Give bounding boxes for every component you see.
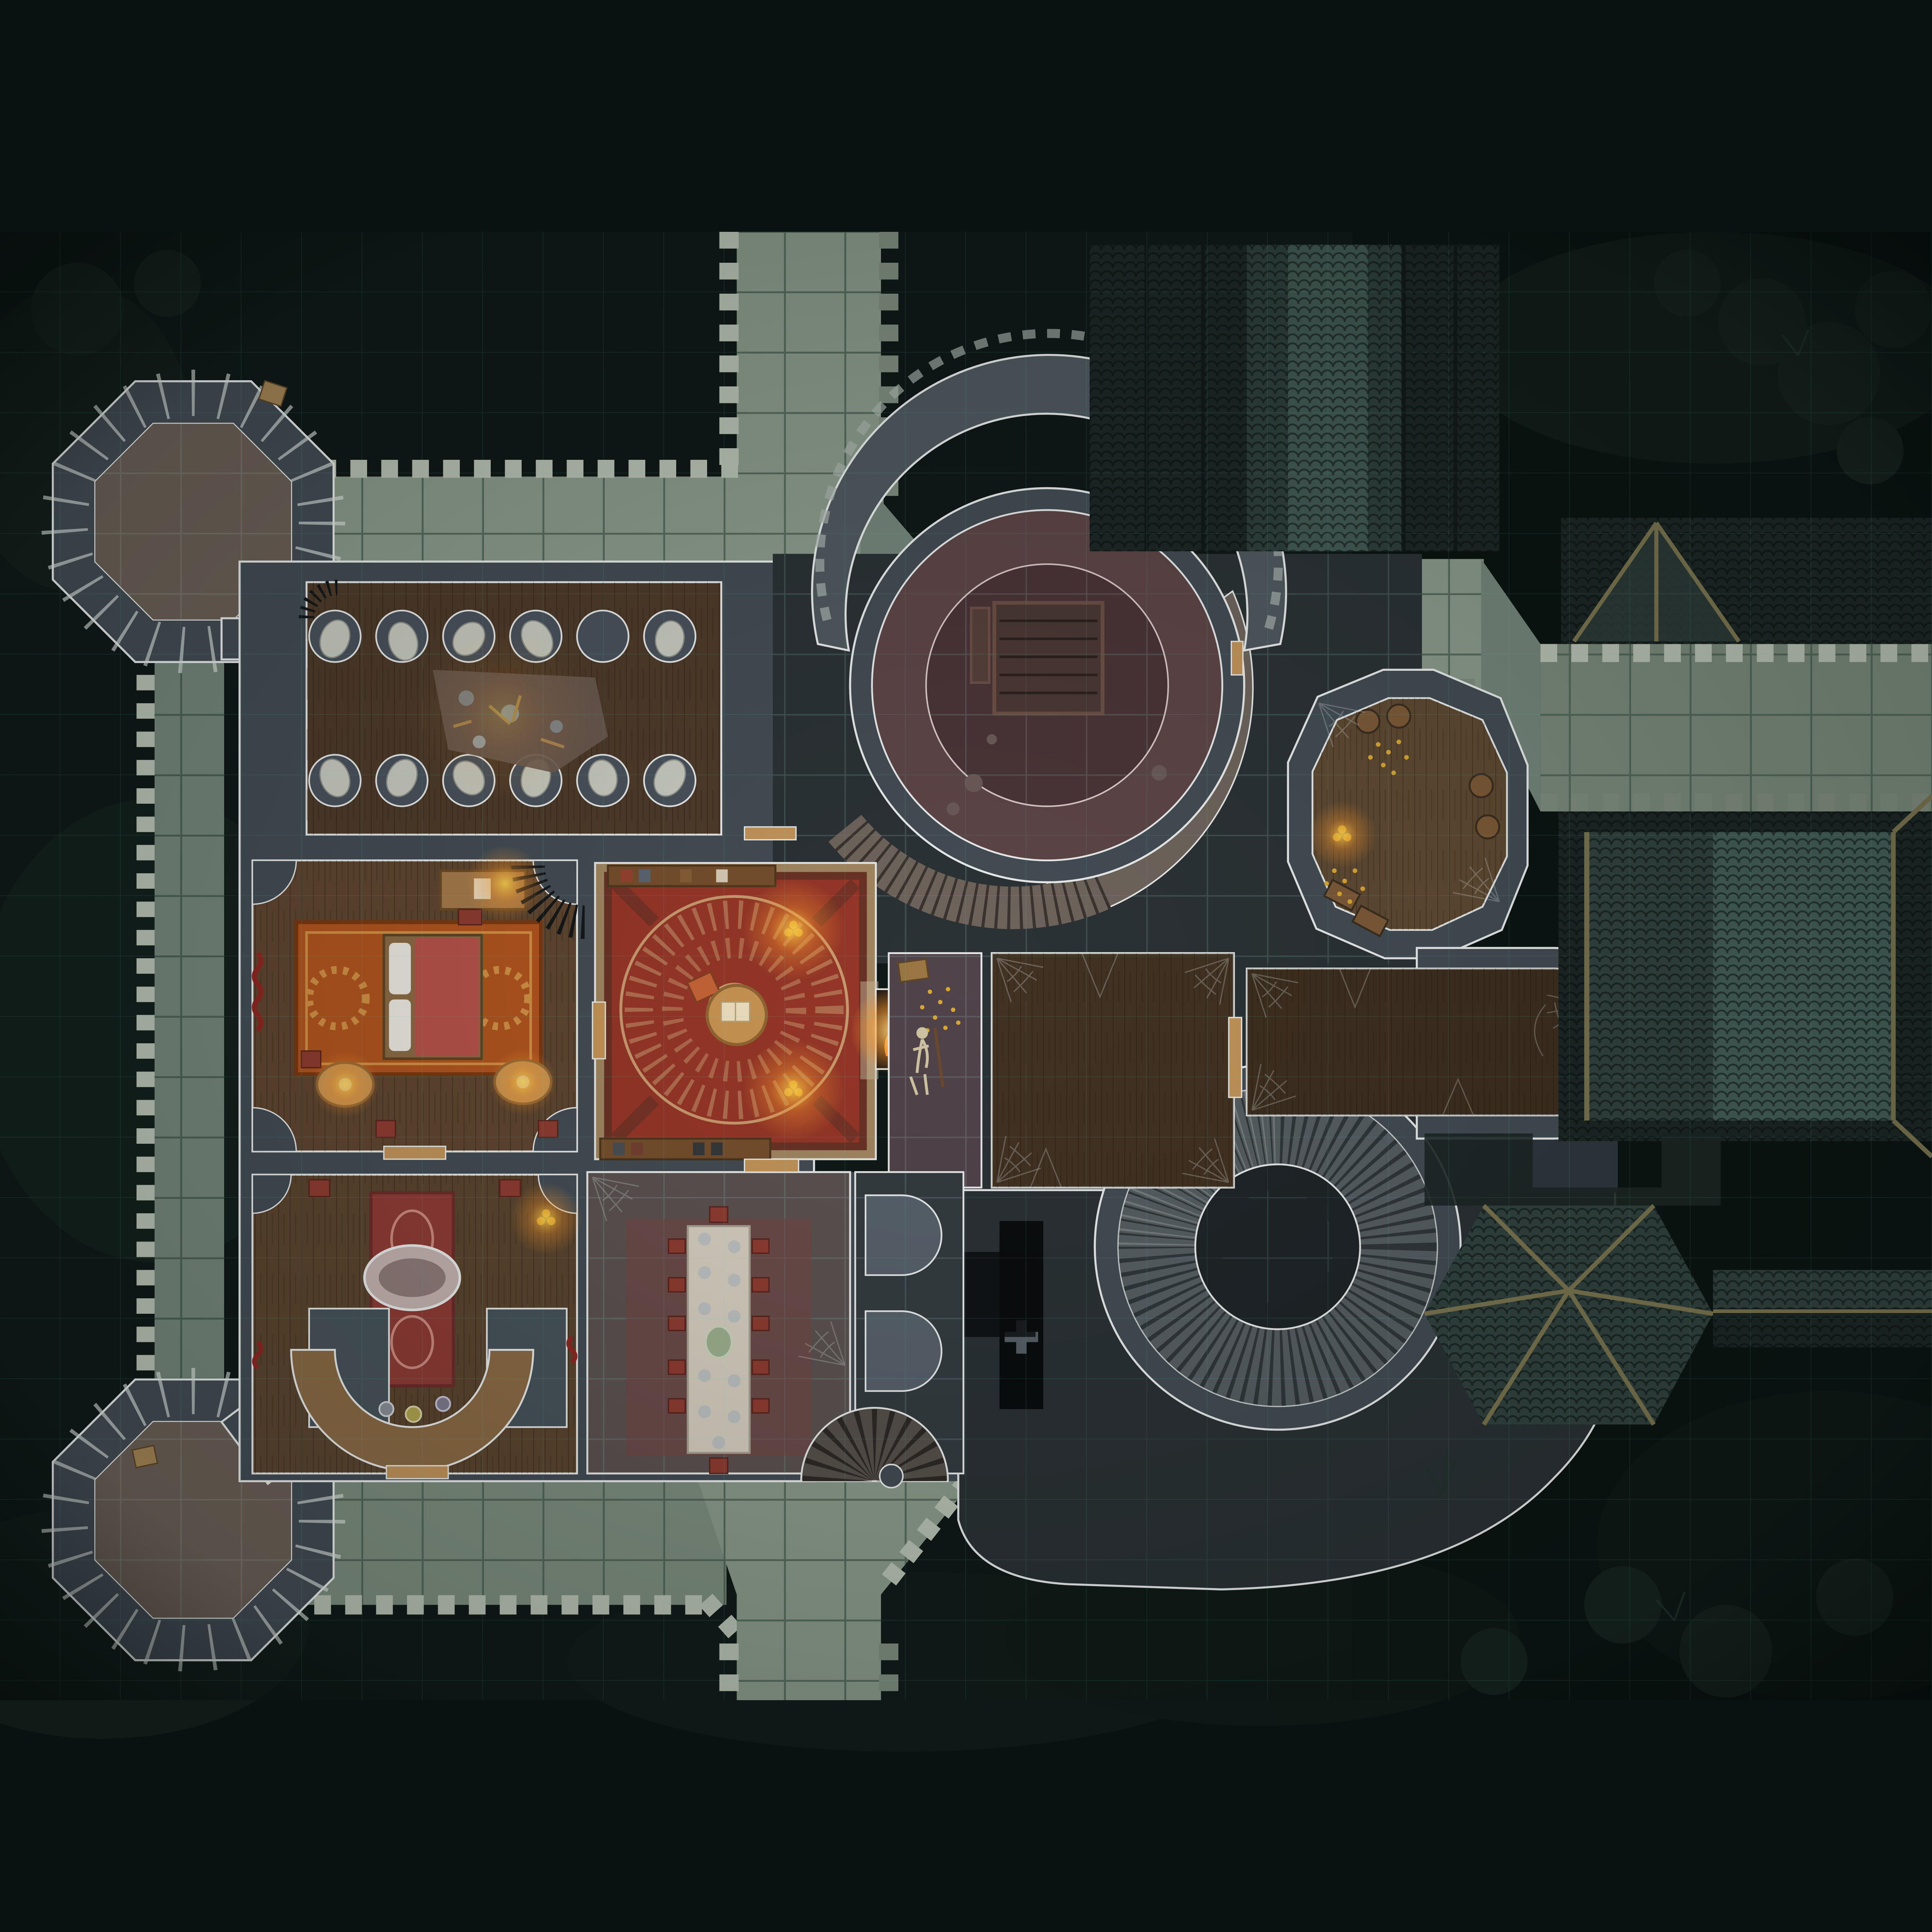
battle-map — [0, 0, 1932, 1932]
vignette — [0, 232, 1932, 1700]
